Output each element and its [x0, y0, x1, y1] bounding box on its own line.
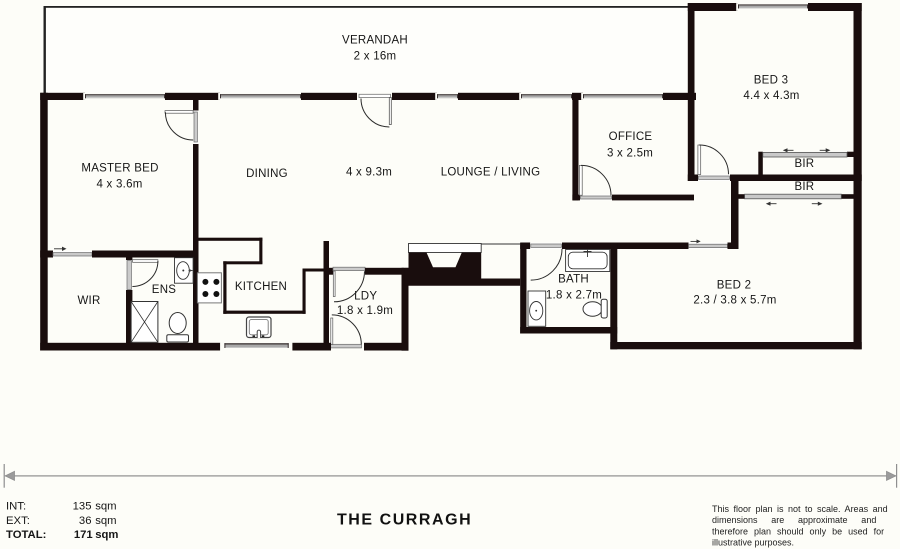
svg-text:36: 36 — [79, 515, 92, 527]
svg-text:MASTER BED: MASTER BED — [81, 163, 158, 175]
svg-text:WIR: WIR — [77, 295, 100, 307]
svg-text:2.3 / 3.8 x 5.7m: 2.3 / 3.8 x 5.7m — [693, 295, 776, 307]
svg-text:OFFICE: OFFICE — [609, 131, 653, 143]
svg-text:therefore plan should only be: therefore plan should only be used for — [712, 526, 884, 536]
svg-text:BED 2: BED 2 — [717, 280, 752, 292]
svg-text:BED 3: BED 3 — [754, 75, 789, 87]
svg-text:4 x 9.3m: 4 x 9.3m — [346, 167, 392, 179]
svg-text:KITCHEN: KITCHEN — [235, 281, 287, 293]
svg-text:dimensions are approximate and: dimensions are approximate and — [712, 515, 876, 525]
svg-text:1.8 x 1.9m: 1.8 x 1.9m — [337, 305, 393, 317]
svg-text:3 x 2.5m: 3 x 2.5m — [607, 148, 653, 160]
svg-text:VERANDAH: VERANDAH — [342, 34, 408, 46]
svg-text:171: 171 — [74, 529, 93, 541]
svg-text:THE CURRAGH: THE CURRAGH — [337, 512, 472, 529]
svg-text:4 x 3.6m: 4 x 3.6m — [96, 179, 142, 191]
svg-text:2 x 16m: 2 x 16m — [354, 50, 397, 62]
svg-text:135: 135 — [73, 500, 92, 512]
svg-text:EXT:: EXT: — [6, 515, 30, 527]
svg-text:TOTAL:: TOTAL: — [6, 529, 46, 541]
svg-text:This floor plan is not to scal: This floor plan is not to scale. Areas a… — [712, 504, 888, 514]
svg-text:illustrative purposes.: illustrative purposes. — [712, 538, 794, 548]
svg-text:BIR: BIR — [794, 158, 814, 170]
svg-text:BATH: BATH — [558, 274, 589, 286]
svg-text:DINING: DINING — [246, 168, 288, 180]
svg-text:sqm: sqm — [95, 529, 118, 541]
svg-text:sqm: sqm — [95, 515, 116, 527]
svg-text:sqm: sqm — [95, 500, 116, 512]
svg-text:4.4 x 4.3m: 4.4 x 4.3m — [743, 90, 799, 102]
svg-text:LOUNGE / LIVING: LOUNGE / LIVING — [441, 167, 541, 179]
svg-text:LDY: LDY — [354, 291, 377, 303]
svg-text:1.8 x 2.7m: 1.8 x 2.7m — [546, 290, 602, 302]
svg-text:BIR: BIR — [794, 181, 814, 193]
svg-text:ENS: ENS — [152, 284, 176, 296]
svg-text:INT:: INT: — [6, 500, 26, 512]
